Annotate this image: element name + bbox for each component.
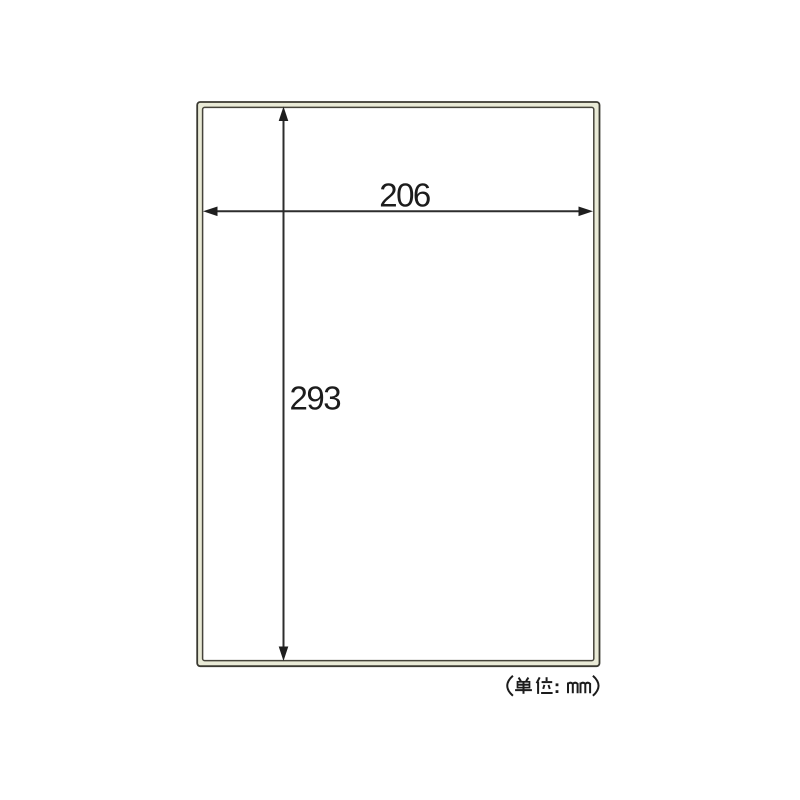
svg-text:206: 206 [379, 177, 430, 214]
svg-text:293: 293 [290, 380, 341, 417]
